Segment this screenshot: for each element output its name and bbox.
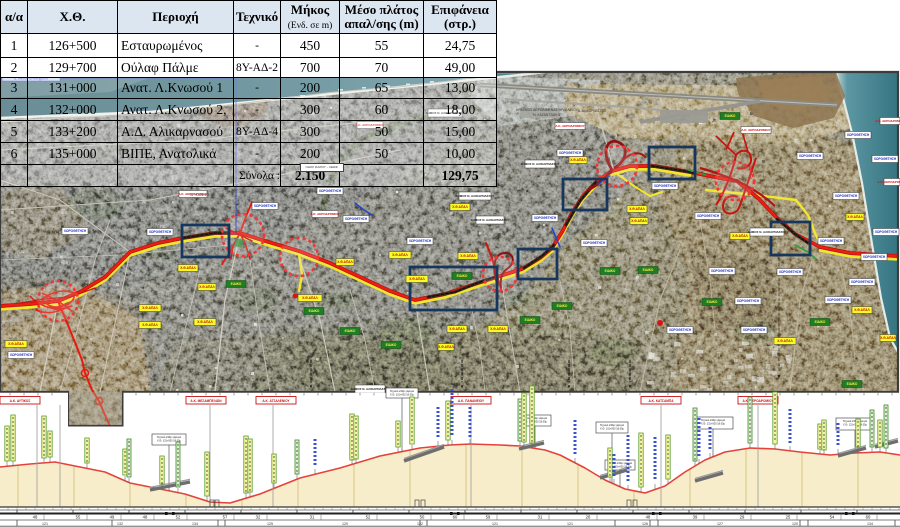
svg-text:48: 48 (33, 515, 38, 520)
svg-text:Α.Κ. ΑΕΡΟΔΡΟΜΙΟΥ: Α.Κ. ΑΕΡΟΔΡΟΜΙΟΥ (742, 399, 774, 403)
svg-text:55: 55 (76, 515, 81, 520)
svg-text:48: 48 (143, 515, 148, 520)
svg-text:Χ.Θ.ΑΠΑΛ: Χ.Θ.ΑΠΑΛ (854, 308, 870, 312)
svg-text:Χ.Θ.ΑΠΑΛ: Χ.Θ.ΑΠΑΛ (847, 215, 863, 219)
svg-text:ΧΩΡΟΘΕΤΗΣΗ: ΧΩΡΟΘΕΤΗΣΗ (835, 194, 858, 198)
svg-text:ΕΙΔΙΚΟ: ΕΙΔΙΚΟ (386, 343, 397, 347)
svg-text:Α.Κ. ΠΑΝΑΝΕΙΟΥ: Α.Κ. ΠΑΝΑΝΕΙΟΥ (458, 399, 485, 403)
svg-text:121: 121 (492, 522, 498, 526)
svg-text:Χ.Θ.ΑΠΑΛ: Χ.Θ.ΑΠΑΛ (460, 254, 476, 258)
svg-text:Χ.Θ.ΑΠΑΛ: Χ.Θ.ΑΠΑΛ (449, 327, 465, 331)
svg-text:Χ.Θ.ΑΠΑΛ: Χ.Θ.ΑΠΑΛ (490, 327, 506, 331)
svg-text:ΕΙΔΙΚΟ: ΕΙΔΙΚΟ (457, 274, 468, 278)
svg-text:ΕΙΔΙΚΟ: ΕΙΔΙΚΟ (605, 269, 616, 273)
svg-text:Χ.Θ. 131+000 18.00μ: Χ.Θ. 131+000 18.00μ (701, 423, 725, 426)
svg-text:125: 125 (267, 522, 273, 526)
svg-text:126: 126 (642, 522, 648, 526)
svg-text:50: 50 (420, 515, 425, 520)
svg-text:ΧΩΡΟΘΕΤΗΣΗ: ΧΩΡΟΘΕΤΗΣΗ (254, 204, 277, 208)
svg-text:ΧΩΡΟΘΕΤΗΣΗ: ΧΩΡΟΘΕΤΗΣΗ (799, 154, 822, 158)
svg-text:ΕΙΔΙΚΟ: ΕΙΔΙΚΟ (345, 329, 356, 333)
svg-text:Χ.Θ.ΑΠΑΛ: Χ.Θ.ΑΠΑΛ (409, 277, 425, 281)
svg-text:ΔΗΜΟΣ Ν. ΑΛΙΚΑΡΝΑΣΣΟΥ: ΔΗΜΟΣ Ν. ΑΛΙΚΑΡΝΑΣΣΟΥ (747, 230, 786, 234)
svg-text:Α.Κ. ΔΥΤΙΚΟΣ: Α.Κ. ΔΥΤΙΚΟΣ (10, 399, 31, 403)
svg-text:ΧΩΡΟΘΕΤΗΣΗ: ΧΩΡΟΘΕΤΗΣΗ (874, 157, 897, 161)
svg-text:ΧΩΡΟΘΕΤΗΣΗ: ΧΩΡΟΘΕΤΗΣΗ (847, 133, 870, 137)
svg-text:Ν. ΑΛΙΚΑΡΝΑΣΣΟΣ: Ν. ΑΛΙΚΑΡΝΑΣΣΟΣ (578, 109, 606, 113)
svg-text:ΧΩΡΟΘΕΤΗΣΗ: ΧΩΡΟΘΕΤΗΣΗ (697, 214, 720, 218)
svg-text:ΧΩΡΟΘΕΤΗΣΗ: ΧΩΡΟΘΕΤΗΣΗ (559, 151, 582, 155)
svg-text:▼: ▼ (309, 384, 313, 389)
svg-text:120: 120 (792, 522, 798, 526)
svg-text:121: 121 (42, 522, 48, 526)
svg-text:Α.Κ. ΑΕΡΟΔΡΟΜΙΟΥ: Α.Κ. ΑΕΡΟΔΡΟΜΙΟΥ (875, 119, 900, 123)
svg-text:60: 60 (866, 515, 871, 520)
svg-text:ΔΗΜΟΣ Ν. ΑΛΙΚΑΡΝΑΣΣΟΥ: ΔΗΜΟΣ Ν. ΑΛΙΚΑΡΝΑΣΣΟΥ (455, 194, 494, 198)
svg-text:Α.Κ. ΑΕΡΟΔΡΟΜΙΟΥ: Α.Κ. ΑΕΡΟΔΡΟΜΙΟΥ (877, 180, 900, 184)
svg-text:Τεχνικό 240μ γέφυρα: Τεχνικό 240μ γέφυρα (390, 389, 415, 393)
svg-text:ΧΩΡΟΘΕΤΗΣΗ: ΧΩΡΟΘΕΤΗΣΗ (711, 269, 734, 273)
svg-text:Χ.Θ.ΑΠΑΛ: Χ.Θ.ΑΠΑΛ (880, 336, 896, 340)
svg-text:Α.Κ. ΑΕΡΟΔΡΟΜΙΟΥ: Α.Κ. ΑΕΡΟΔΡΟΜΙΟΥ (310, 212, 339, 216)
svg-text:▼: ▼ (460, 384, 464, 389)
svg-text:Χ.Θ.ΑΠΑΛ: Χ.Θ.ΑΠΑΛ (197, 320, 213, 324)
svg-text:31: 31 (310, 515, 315, 520)
svg-text:Τεχνικό 240μ γέφυρα: Τεχνικό 240μ γέφυρα (157, 435, 182, 439)
svg-text:134: 134 (192, 522, 198, 526)
svg-text:Α.Κ. ΚΑΤΣΑΜΠΑ: Α.Κ. ΚΑΤΣΑΜΠΑ (648, 399, 674, 403)
svg-text:ΧΩΡΟΘΕΤΗΣΗ: ΧΩΡΟΘΕΤΗΣΗ (654, 184, 677, 188)
svg-text:Χ.Θ.ΑΠΑΛ: Χ.Θ.ΑΠΑΛ (631, 219, 647, 223)
svg-text:127: 127 (717, 522, 723, 526)
svg-text:ΧΩΡΟΘΕΤΗΣΗ: ΧΩΡΟΘΕΤΗΣΗ (409, 239, 432, 243)
svg-text:Χ.Θ.ΑΠΑΛ: Χ.Θ.ΑΠΑΛ (142, 323, 158, 327)
svg-text:ΧΩΡΟΘΕΤΗΣΗ: ΧΩΡΟΘΕΤΗΣΗ (319, 189, 342, 193)
svg-text:134: 134 (867, 522, 873, 526)
svg-text:ΧΩΡΟΘΕΤΗΣΗ: ΧΩΡΟΘΕΤΗΣΗ (875, 230, 898, 234)
svg-text:ΚΡΑΤΙΚΟΣ ΑΕΡΟΛΙΜΕΝΑΣ ΗΡΑΚΛΕΙΟΥ: ΚΡΑΤΙΚΟΣ ΑΕΡΟΛΙΜΕΝΑΣ ΗΡΑΚΛΕΙΟΥ (516, 108, 578, 112)
svg-text:ΧΩΡΟΘΕΤΗΣΗ: ΧΩΡΟΘΕΤΗΣΗ (863, 255, 886, 259)
svg-text:Χ.Θ.ΑΠΑΛ: Χ.Θ.ΑΠΑΛ (570, 158, 586, 162)
svg-text:49: 49 (110, 515, 115, 520)
svg-text:ΧΩΡΟΘΕΤΗΣΗ: ΧΩΡΟΘΕΤΗΣΗ (669, 328, 692, 332)
svg-text:Χ.Θ.ΑΠΑΛ: Χ.Θ.ΑΠΑΛ (392, 253, 408, 257)
svg-text:ΕΙΔΙΚΟ: ΕΙΔΙΚΟ (643, 268, 654, 272)
svg-text:ΕΙΔΙΚΟ: ΕΙΔΙΚΟ (815, 320, 826, 324)
svg-text:Χ.Θ.ΑΠΑΛ: Χ.Θ.ΑΠΑΛ (8, 342, 24, 346)
svg-text:▼: ▼ (567, 384, 571, 389)
svg-text:ΔΗΜΟΣ Ν. ΑΛΙΚΑΡΝΑΣΣΟΥ: ΔΗΜΟΣ Ν. ΑΛΙΚΑΡΝΑΣΣΟΥ (350, 387, 389, 391)
svg-text:ΧΩΡΟΘΕΤΗΣΗ: ΧΩΡΟΘΕΤΗΣΗ (345, 217, 368, 221)
svg-text:ΧΩΡΟΘΕΤΗΣΗ: ΧΩΡΟΘΕΤΗΣΗ (737, 299, 760, 303)
svg-text:Χ.Θ. 131+000 18.00μ: Χ.Θ. 131+000 18.00μ (600, 428, 624, 431)
svg-text:48: 48 (646, 515, 651, 520)
svg-text:▼: ▼ (777, 374, 782, 380)
svg-text:Χ.Θ. 131+000 18.00μ: Χ.Θ. 131+000 18.00μ (843, 424, 867, 427)
svg-text:Χ.Θ.ΑΠΑΛ: Χ.Θ.ΑΠΑΛ (302, 296, 318, 300)
svg-text:ΧΩΡΟΘΕΤΗΣΗ: ΧΩΡΟΘΕΤΗΣΗ (64, 229, 87, 233)
svg-text:Τεχνικό 240μ γέφυρα: Τεχνικό 240μ γέφυρα (523, 416, 548, 420)
svg-text:Α.Κ. ΜΕΣΑΜΠΕΛΙΩΝ: Α.Κ. ΜΕΣΑΜΠΕΛΙΩΝ (190, 399, 222, 403)
svg-text:59: 59 (486, 515, 491, 520)
svg-text:120: 120 (342, 522, 348, 526)
svg-text:57: 57 (223, 515, 228, 520)
svg-text:ΧΩΡΟΘΕΤΗΣΗ: ΧΩΡΟΘΕΤΗΣΗ (149, 230, 172, 234)
svg-text:ΔΗΜΟΣ Ν. ΑΛΙΚΑΡΝΑΣΣΟΥ: ΔΗΜΟΣ Ν. ΑΛΙΚΑΡΝΑΣΣΟΥ (520, 162, 559, 166)
svg-text:ΧΩΡΟΘΕΤΗΣΗ: ΧΩΡΟΘΕΤΗΣΗ (820, 239, 843, 243)
svg-text:▼: ▼ (628, 384, 632, 389)
svg-text:ΧΩΡΟΘΕΤΗΣΗ: ΧΩΡΟΘΕΤΗΣΗ (779, 270, 802, 274)
svg-text:Χ.Θ.ΑΠΑΛ: Χ.Θ.ΑΠΑΛ (180, 266, 196, 270)
svg-text:ΕΙΔΙΚΟ: ΕΙΔΙΚΟ (309, 309, 320, 313)
svg-text:ΧΩΡΟΘΕΤΗΣΗ: ΧΩΡΟΘΕΤΗΣΗ (534, 216, 557, 220)
svg-text:ΕΙΔΙΚΟ: ΕΙΔΙΚΟ (557, 304, 568, 308)
svg-text:ΕΙΔΙΚΟ: ΕΙΔΙΚΟ (725, 114, 736, 118)
svg-text:Α.Κ. ΑΤΣΑΛΕΝΙΟΥ: Α.Κ. ΑΤΣΑΛΕΝΙΟΥ (262, 399, 290, 403)
svg-text:Τεχνικό 240μ γέφυρα: Τεχνικό 240μ γέφυρα (701, 418, 726, 422)
svg-text:ΕΙΔΙΚΟ: ΕΙΔΙΚΟ (525, 318, 536, 322)
svg-text:122: 122 (417, 522, 423, 526)
svg-text:32: 32 (256, 515, 261, 520)
svg-text:Χ.Θ. 131+000 18.00μ: Χ.Θ. 131+000 18.00μ (523, 421, 547, 424)
svg-text:Χ.Θ.ΑΠΑΛ: Χ.Θ.ΑΠΑΛ (142, 306, 158, 310)
svg-text:ΕΙΔΙΚΟ: ΕΙΔΙΚΟ (707, 300, 718, 304)
svg-text:52: 52 (366, 515, 371, 520)
svg-text:121: 121 (567, 522, 573, 526)
svg-text:Τεχνικό 240μ γέφυρα: Τεχνικό 240μ γέφυρα (600, 423, 625, 427)
svg-text:Χ.Θ.ΑΠΑΛ: Χ.Θ.ΑΠΑΛ (337, 260, 353, 264)
svg-text:Χ.Θ.ΑΠΑΛ: Χ.Θ.ΑΠΑΛ (452, 205, 468, 209)
svg-text:ΧΩΡΟΘΕΤΗΣΗ: ΧΩΡΟΘΕΤΗΣΗ (827, 298, 850, 302)
svg-text:29: 29 (740, 515, 745, 520)
svg-text:39: 39 (693, 515, 698, 520)
svg-text:Χ.Θ. 131+000 18.00μ: Χ.Θ. 131+000 18.00μ (390, 394, 414, 397)
svg-text:ΕΙΔΙΚΟ: ΕΙΔΙΚΟ (231, 282, 242, 286)
svg-text:“Ν. ΚΑΖΑΝΤΖΑΚΗΣ”: “Ν. ΚΑΖΑΝΤΖΑΚΗΣ” (532, 113, 561, 117)
svg-text:Χ.Θ.ΑΠΑΛ: Χ.Θ.ΑΠΑΛ (199, 285, 215, 289)
svg-text:132: 132 (117, 522, 123, 526)
svg-text:ΑΓ. ΙΩΑΝΝΗΣ: ΑΓ. ΙΩΑΝΝΗΣ (190, 193, 210, 197)
svg-text:Τεχνικό 240μ γέφυρα: Τεχνικό 240μ γέφυρα (843, 419, 868, 423)
svg-text:ΧΩΡΟΘΕΤΗΣΗ: ΧΩΡΟΘΕΤΗΣΗ (851, 280, 874, 284)
svg-text:Χ.Θ.ΑΠΑΛ: Χ.Θ.ΑΠΑΛ (777, 339, 793, 343)
svg-text:60: 60 (453, 515, 458, 520)
svg-text:ΔΗΜΟΣ Ν. ΑΛΙΚΑΡΝΑΣΣΟΥ: ΔΗΜΟΣ Ν. ΑΛΙΚΑΡΝΑΣΣΟΥ (470, 218, 509, 222)
svg-text:Χ.Θ.ΑΠΑΛ: Χ.Θ.ΑΠΑΛ (732, 234, 748, 238)
svg-text:52: 52 (176, 515, 181, 520)
svg-text:ΧΩΡΟΘΕΤΗΣΗ: ΧΩΡΟΘΕΤΗΣΗ (583, 241, 606, 245)
svg-text:Χ.Θ.ΑΠΑΛ: Χ.Θ.ΑΠΑΛ (629, 207, 645, 211)
svg-text:Α.Κ. ΑΕΡΟΔΡΟΜΙΟΥ: Α.Κ. ΑΕΡΟΔΡΟΜΙΟΥ (555, 124, 584, 128)
svg-text:Χ.Θ.ΑΠΑΛ: Χ.Θ.ΑΠΑΛ (438, 345, 454, 349)
svg-text:25: 25 (786, 515, 791, 520)
svg-text:ΕΙΔΙΚΟ: ΕΙΔΙΚΟ (847, 382, 858, 386)
svg-text:54: 54 (830, 515, 835, 520)
svg-text:26: 26 (586, 515, 591, 520)
svg-text:ΧΩΡΟΘΕΤΗΣΗ: ΧΩΡΟΘΕΤΗΣΗ (10, 353, 33, 357)
svg-text:ΧΩΡΟΘΕΤΗΣΗ: ΧΩΡΟΘΕΤΗΣΗ (743, 328, 766, 332)
svg-text:Α.Κ. ΑΕΡΟΔΡΟΜΙΟΥ: Α.Κ. ΑΕΡΟΔΡΟΜΙΟΥ (741, 128, 770, 132)
svg-text:31: 31 (538, 515, 543, 520)
